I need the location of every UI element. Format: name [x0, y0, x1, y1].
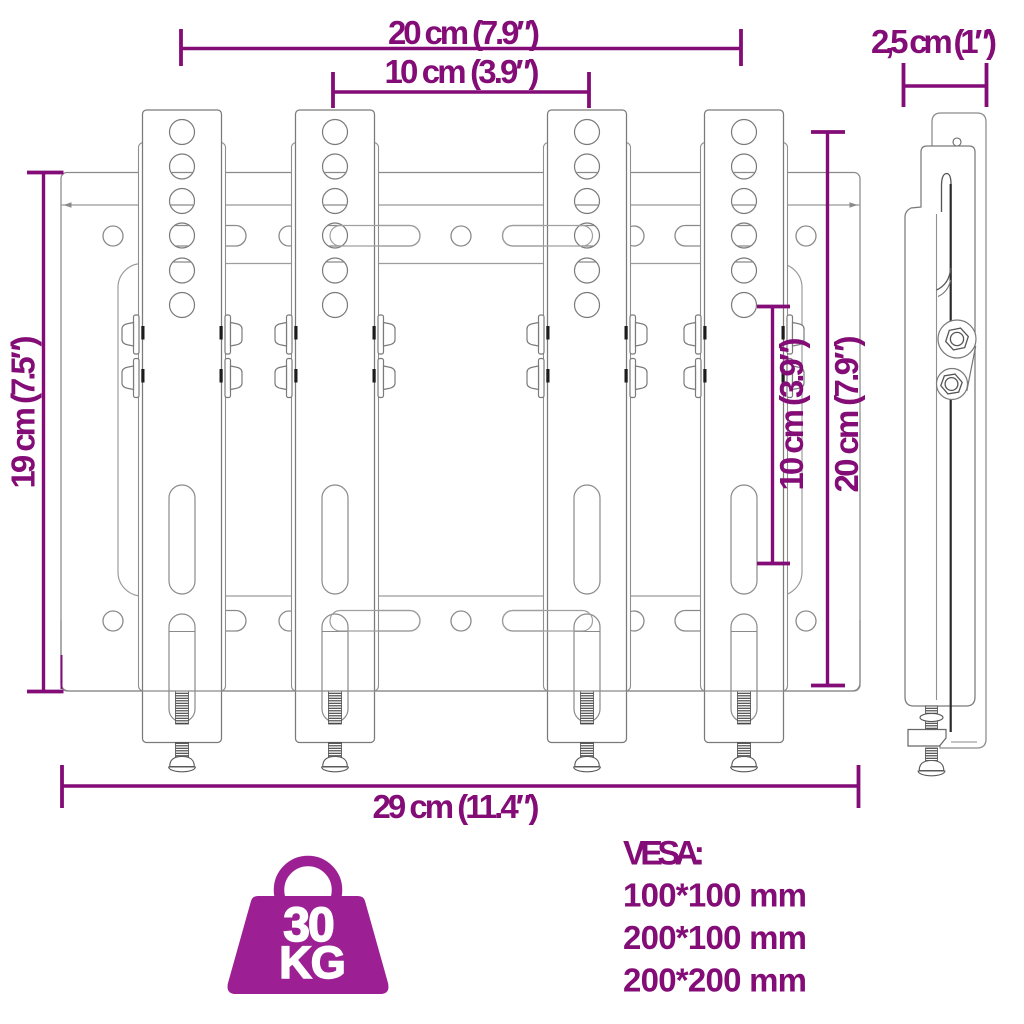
svg-text:100*100 mm: 100*100 mm — [623, 877, 807, 914]
svg-text:VESA:: VESA: — [623, 835, 705, 873]
svg-text:10 cm (3.9″): 10 cm (3.9″) — [773, 338, 810, 491]
svg-text:10 cm (3.9″): 10 cm (3.9″) — [385, 53, 540, 90]
svg-text:19 cm (7.5″): 19 cm (7.5″) — [5, 336, 42, 489]
svg-text:20 cm (7.9″): 20 cm (7.9″) — [388, 14, 540, 51]
svg-text:2,5 cm (1″): 2,5 cm (1″) — [871, 23, 997, 60]
svg-text:200*100 mm: 200*100 mm — [623, 919, 807, 956]
svg-text:200*200 mm: 200*200 mm — [623, 962, 807, 999]
svg-text:KG: KG — [279, 937, 345, 988]
svg-text:20 cm (7.9″): 20 cm (7.9″) — [828, 336, 865, 493]
svg-text:29 cm (11.4″): 29 cm (11.4″) — [373, 788, 540, 825]
